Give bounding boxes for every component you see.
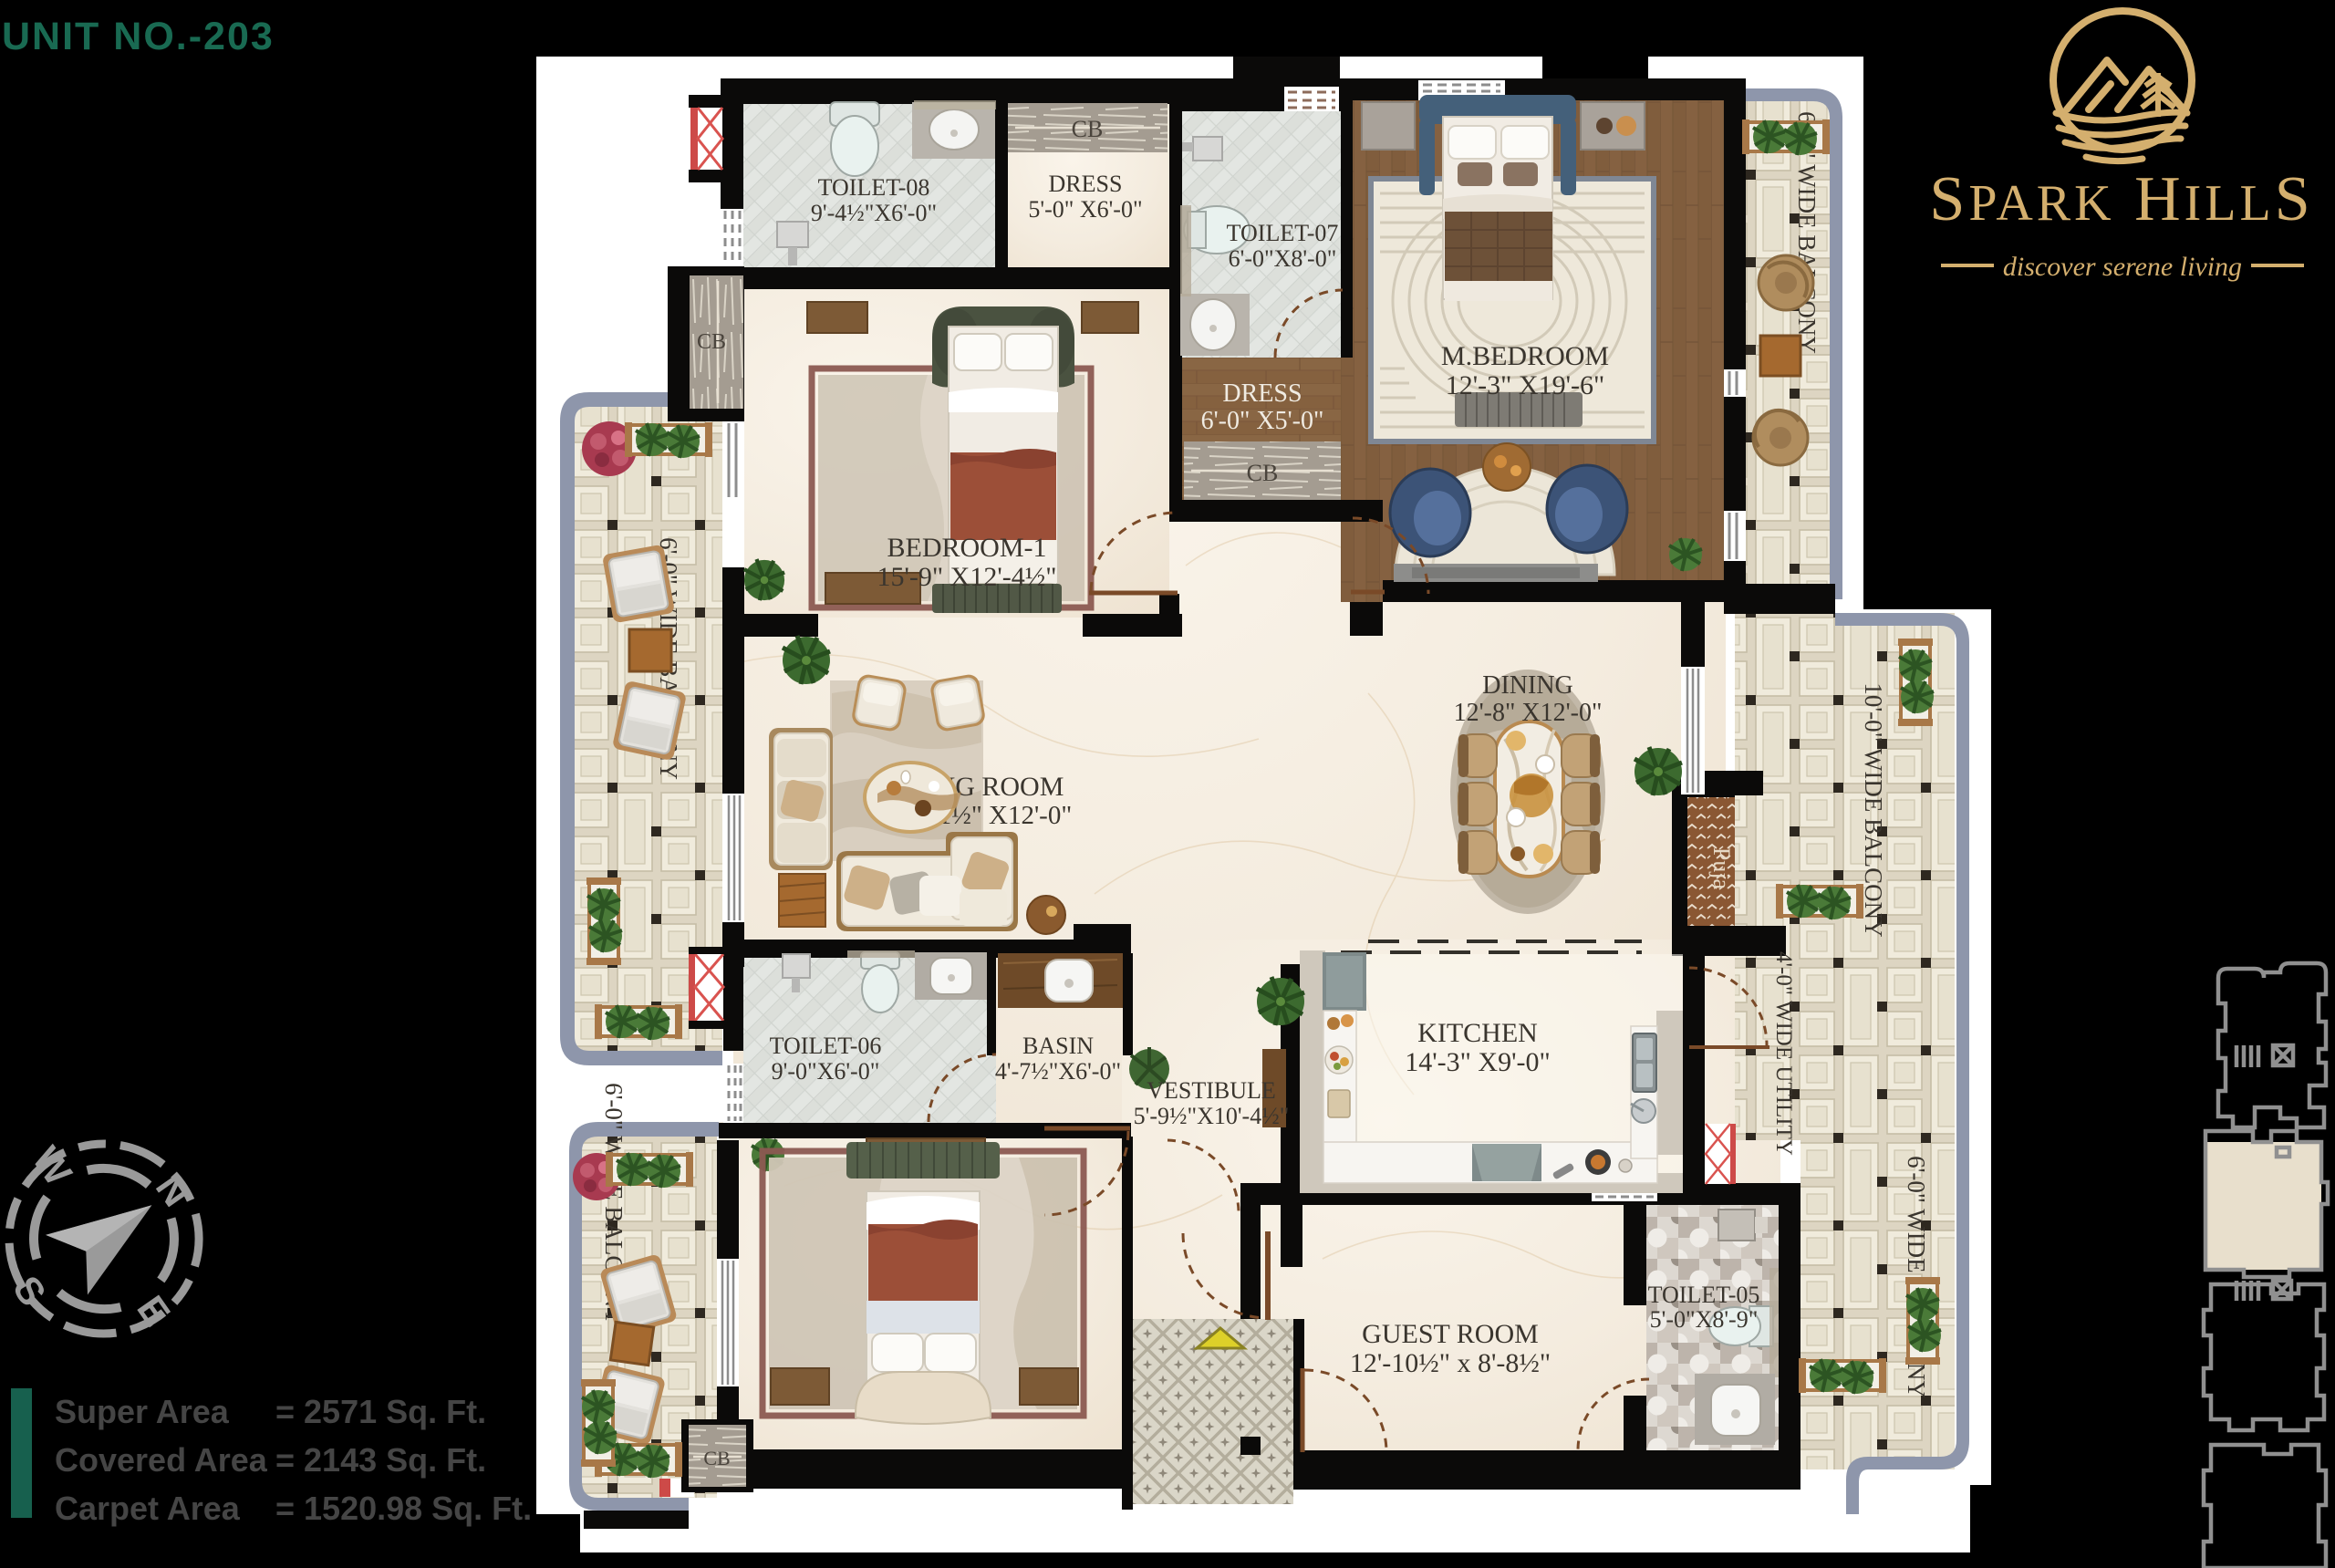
- svg-text:12'-3" X19'-6": 12'-3" X19'-6": [1446, 370, 1604, 400]
- svg-text:6'-0"X8'-0": 6'-0"X8'-0": [1229, 245, 1337, 272]
- svg-text:= 2571 Sq. Ft.: = 2571 Sq. Ft.: [275, 1393, 486, 1430]
- svg-text:CB: CB: [1072, 116, 1104, 142]
- svg-text:12'-8" X12'-0": 12'-8" X12'-0": [1454, 699, 1603, 727]
- svg-text:TOILET-05: TOILET-05: [1648, 1282, 1760, 1308]
- svg-text:9'-0"X6'-0": 9'-0"X6'-0": [772, 1058, 880, 1085]
- svg-text:GUEST ROOM: GUEST ROOM: [1362, 1319, 1539, 1349]
- svg-text:5'-0" X6'-0": 5'-0" X6'-0": [1028, 196, 1142, 223]
- svg-text:= 2143 Sq. Ft.: = 2143 Sq. Ft.: [275, 1441, 486, 1479]
- svg-text:VESTIBULE: VESTIBULE: [1147, 1077, 1276, 1104]
- svg-text:CB: CB: [703, 1447, 730, 1469]
- svg-text:M.BEDROOM: M.BEDROOM: [1441, 341, 1609, 371]
- svg-text:Super Area: Super Area: [55, 1393, 230, 1430]
- svg-text:CB: CB: [697, 330, 726, 354]
- svg-text:Carpet Area: Carpet Area: [55, 1490, 241, 1527]
- svg-text:6'-0" X5'-0": 6'-0" X5'-0": [1201, 407, 1324, 435]
- svg-text:= 1520.98 Sq. Ft.: = 1520.98 Sq. Ft.: [275, 1490, 532, 1527]
- svg-text:14'-3" X9'-0": 14'-3" X9'-0": [1405, 1047, 1550, 1077]
- svg-text:4'-7½"X6'-0": 4'-7½"X6'-0": [995, 1058, 1121, 1085]
- svg-text:UNIT NO.-203: UNIT NO.-203: [2, 15, 275, 58]
- svg-text:TOILET-07: TOILET-07: [1227, 220, 1339, 246]
- svg-text:9'-4½"X6'-0": 9'-4½"X6'-0": [811, 200, 937, 226]
- svg-text:15'-9" X12'-4½": 15'-9" X12'-4½": [877, 562, 1057, 592]
- svg-text:DRESS: DRESS: [1222, 379, 1302, 408]
- svg-text:4'-0" WIDE UTILITY: 4'-0" WIDE UTILITY: [1771, 951, 1796, 1156]
- svg-text:DINING: DINING: [1482, 671, 1573, 700]
- svg-text:KITCHEN: KITCHEN: [1417, 1018, 1538, 1048]
- svg-text:BEDROOM-1: BEDROOM-1: [887, 533, 1046, 563]
- svg-text:10'-0" WIDE BALCONY: 10'-0" WIDE BALCONY: [1860, 682, 1887, 937]
- svg-text:Covered Area: Covered Area: [55, 1441, 268, 1479]
- svg-text:5'-9½"X10'-4½": 5'-9½"X10'-4½": [1134, 1103, 1290, 1129]
- svg-text:BASIN: BASIN: [1022, 1033, 1094, 1059]
- svg-text:DRESS: DRESS: [1049, 171, 1123, 197]
- svg-text:discover serene living: discover serene living: [2003, 252, 2242, 282]
- svg-text:12'-10½" x 8'-8½": 12'-10½" x 8'-8½": [1350, 1348, 1551, 1378]
- svg-text:5'-0"X8'-9": 5'-0"X8'-9": [1650, 1306, 1759, 1333]
- svg-text:CB: CB: [1247, 460, 1279, 486]
- svg-text:TOILET-06: TOILET-06: [770, 1033, 882, 1059]
- svg-text:Puja: Puja: [1708, 847, 1735, 890]
- svg-text:SPARK HILLS: SPARK HILLS: [1929, 164, 2313, 234]
- svg-text:TOILET-08: TOILET-08: [818, 174, 930, 201]
